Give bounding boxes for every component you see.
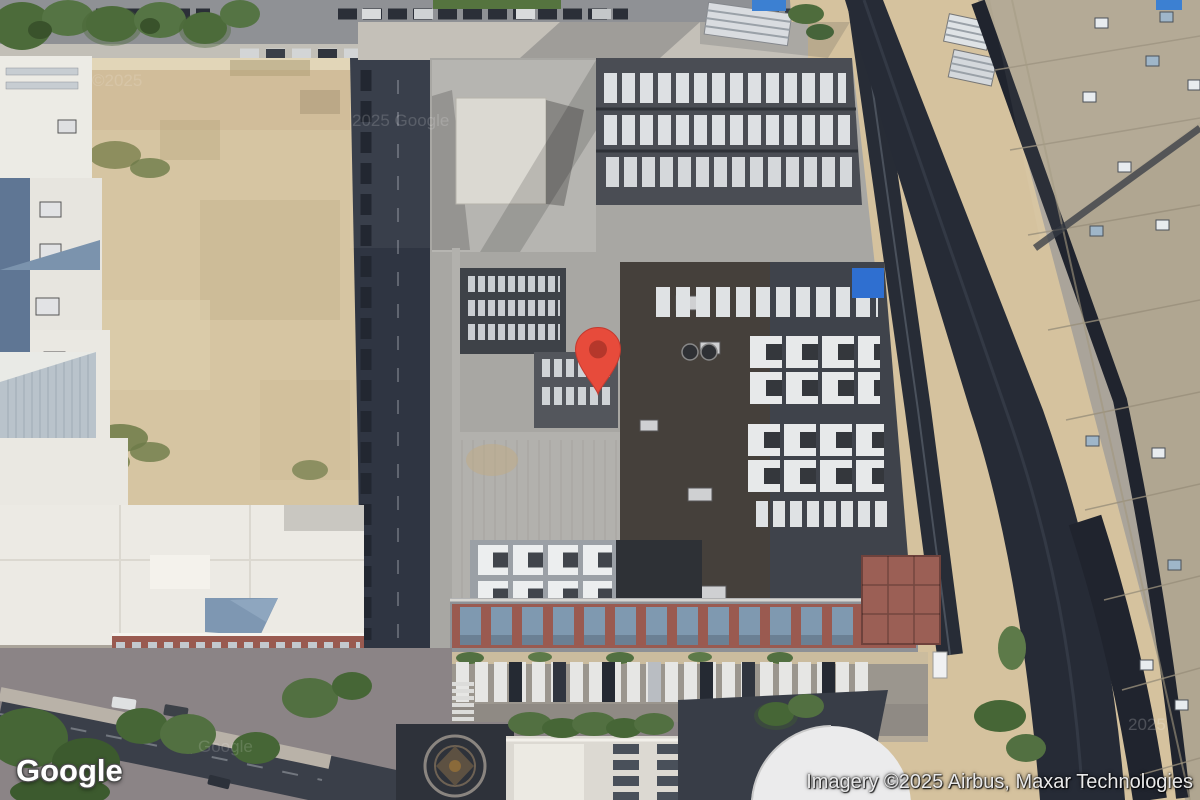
watermark-text: ©2025 <box>92 71 142 90</box>
map-marker[interactable] <box>574 326 622 396</box>
satellite-imagery: ©2025 2025 Google Google 2025 <box>0 0 1200 800</box>
map-canvas[interactable]: ©2025 2025 Google Google 2025 Google Ima… <box>0 0 1200 800</box>
bottom-left-building <box>0 505 364 662</box>
pin-inner-circle <box>589 340 607 358</box>
pin-body <box>576 328 621 395</box>
watermark-text: 2025 <box>1128 715 1166 734</box>
google-logo[interactable]: Google <box>16 753 123 789</box>
watermark-text: 2025 Google <box>352 111 449 130</box>
watermark-text: Google <box>198 737 253 756</box>
imagery-attribution: Imagery ©2025 Airbus, Maxar Technologies <box>806 771 1193 794</box>
map-pin-icon <box>574 326 622 396</box>
